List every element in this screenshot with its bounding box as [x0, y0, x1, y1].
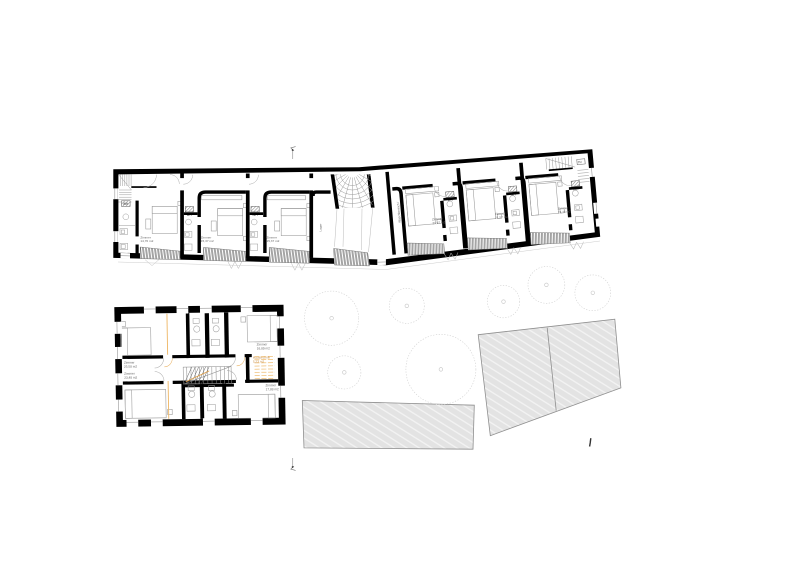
svg-text:Lager: Lager: [319, 224, 323, 232]
svg-text:14,76 m2: 14,76 m2: [140, 239, 153, 243]
svg-text:5,23 m2: 5,23 m2: [253, 360, 265, 364]
svg-text:15,37 m2: 15,37 m2: [201, 239, 214, 243]
svg-text:25,58 m2: 25,58 m2: [124, 364, 137, 368]
svg-text:17,88 m2: 17,88 m2: [266, 387, 279, 391]
svg-text:16,89 m2: 16,89 m2: [257, 346, 270, 350]
svg-text:15,37 m2: 15,37 m2: [267, 239, 280, 243]
svg-text:23,48 m2: 23,48 m2: [124, 376, 137, 380]
svg-text:WH: WH: [123, 202, 129, 206]
